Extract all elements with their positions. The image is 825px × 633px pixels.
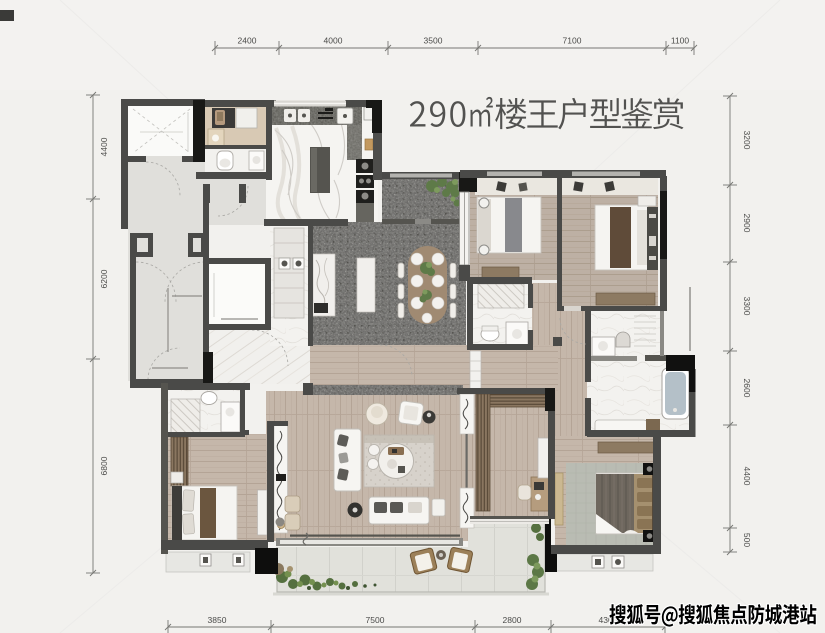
svg-text:1100: 1100 (671, 36, 690, 46)
svg-text:7100: 7100 (563, 36, 582, 46)
svg-text:500: 500 (742, 533, 752, 547)
svg-text:2900: 2900 (742, 214, 752, 233)
svg-text:3850: 3850 (208, 615, 227, 625)
svg-text:4400: 4400 (742, 467, 752, 486)
svg-text:2600: 2600 (742, 379, 752, 398)
svg-text:3500: 3500 (424, 36, 443, 46)
svg-text:4400: 4400 (99, 137, 109, 156)
svg-text:2400: 2400 (238, 36, 257, 46)
svg-text:7500: 7500 (366, 615, 385, 625)
svg-text:3300: 3300 (742, 297, 752, 316)
svg-text:3200: 3200 (742, 131, 752, 150)
svg-text:6800: 6800 (99, 456, 109, 475)
svg-text:6200: 6200 (99, 269, 109, 288)
svg-text:4000: 4000 (324, 36, 343, 46)
svg-text:2800: 2800 (503, 615, 522, 625)
